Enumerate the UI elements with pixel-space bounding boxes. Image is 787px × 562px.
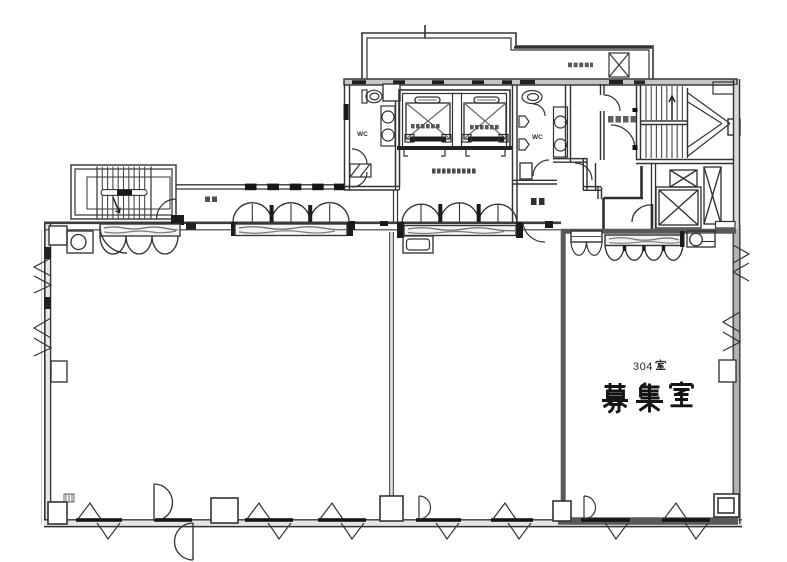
svg-text:304: 304 bbox=[633, 361, 653, 373]
svg-text:WC: WC bbox=[532, 134, 543, 141]
svg-text:WC: WC bbox=[357, 131, 368, 138]
